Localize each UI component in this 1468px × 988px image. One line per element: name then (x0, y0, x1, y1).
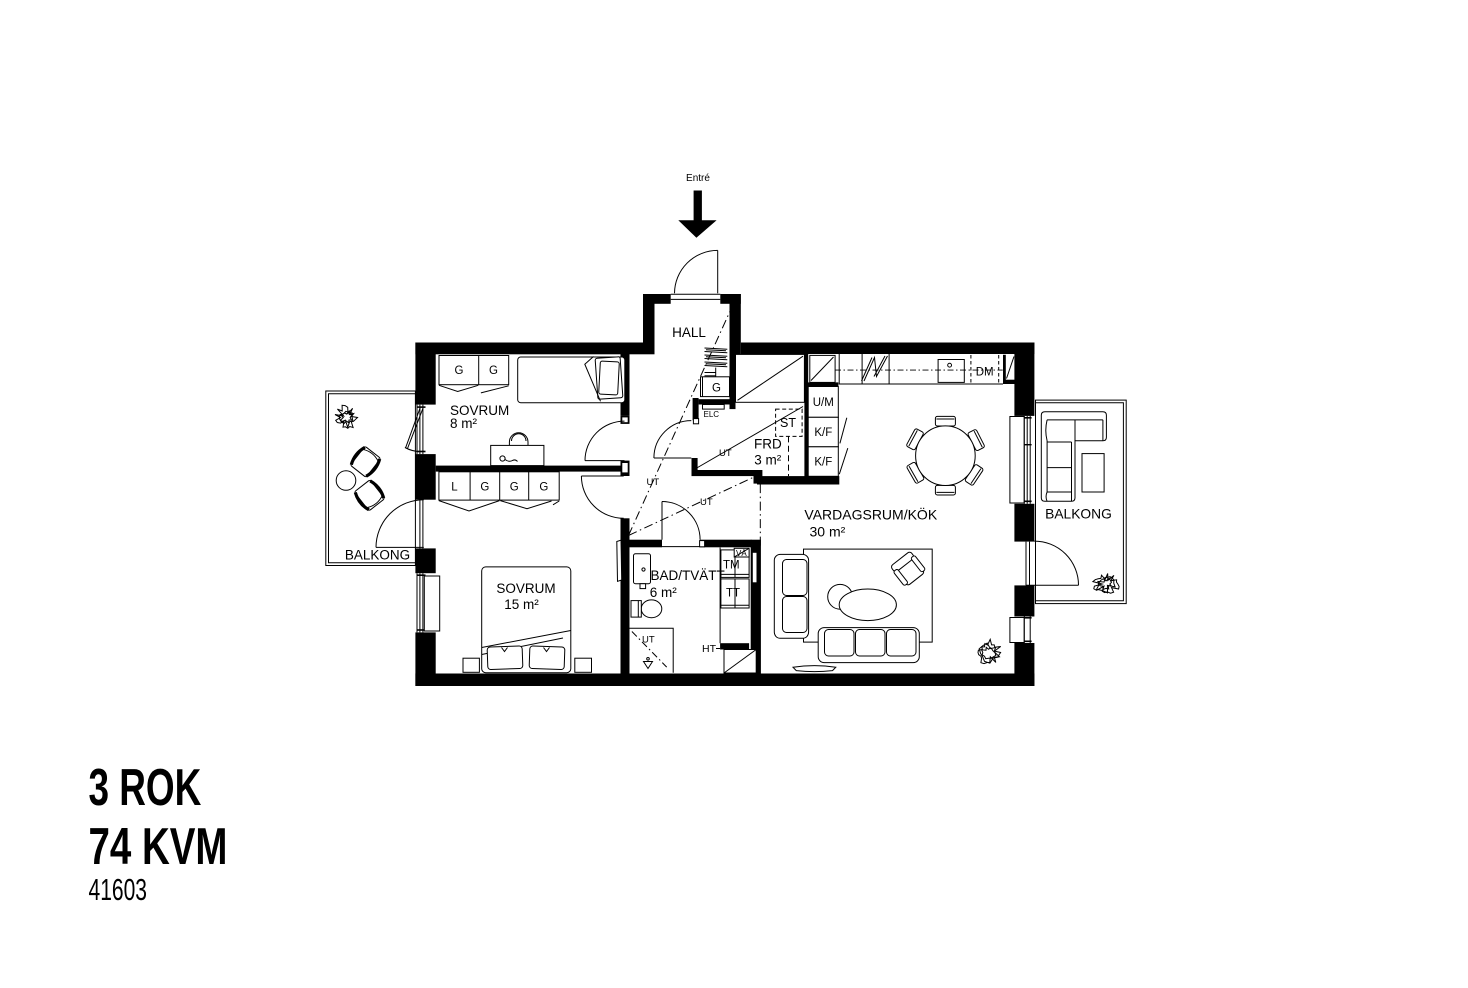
svg-text:8 m²: 8 m² (450, 416, 478, 431)
svg-text:DM: DM (976, 367, 994, 379)
svg-text:BALKONG: BALKONG (345, 547, 410, 562)
svg-text:BAD/TVÄTT: BAD/TVÄTT (651, 568, 725, 583)
svg-text:G: G (489, 365, 498, 377)
svg-text:UT: UT (642, 635, 655, 646)
svg-text:Entré: Entré (686, 173, 710, 184)
svg-text:G: G (455, 365, 464, 377)
svg-text:BALKONG: BALKONG (1045, 506, 1112, 521)
svg-text:G: G (480, 482, 489, 494)
svg-text:FRD: FRD (754, 436, 782, 451)
svg-text:3 ROK: 3 ROK (89, 758, 202, 817)
svg-text:G: G (712, 383, 721, 395)
svg-text:U/M: U/M (813, 397, 834, 409)
svg-text:HALL: HALL (672, 325, 706, 340)
svg-text:HT: HT (702, 643, 717, 655)
svg-text:UT: UT (719, 448, 732, 459)
svg-text:TM: TM (723, 560, 740, 572)
svg-text:TT: TT (726, 588, 740, 600)
svg-text:VARDAGSRUM/KÖK: VARDAGSRUM/KÖK (804, 506, 937, 523)
svg-text:K/F: K/F (814, 427, 832, 439)
svg-text:G: G (539, 482, 548, 494)
svg-text:K/F: K/F (814, 457, 832, 469)
svg-text:G: G (510, 482, 519, 494)
svg-text:VÄ: VÄ (736, 549, 747, 558)
svg-text:3 m²: 3 m² (754, 452, 782, 467)
svg-text:15 m²: 15 m² (504, 597, 539, 612)
svg-text:30 m²: 30 m² (810, 524, 846, 540)
svg-text:L: L (451, 482, 458, 494)
svg-text:ELC: ELC (704, 410, 720, 419)
svg-text:UT: UT (700, 497, 713, 508)
svg-text:6 m²: 6 m² (650, 585, 678, 600)
svg-text:UT: UT (647, 477, 660, 488)
svg-text:74 KVM: 74 KVM (89, 817, 228, 875)
svg-text:SOVRUM: SOVRUM (496, 581, 555, 596)
svg-text:41603: 41603 (89, 872, 147, 907)
